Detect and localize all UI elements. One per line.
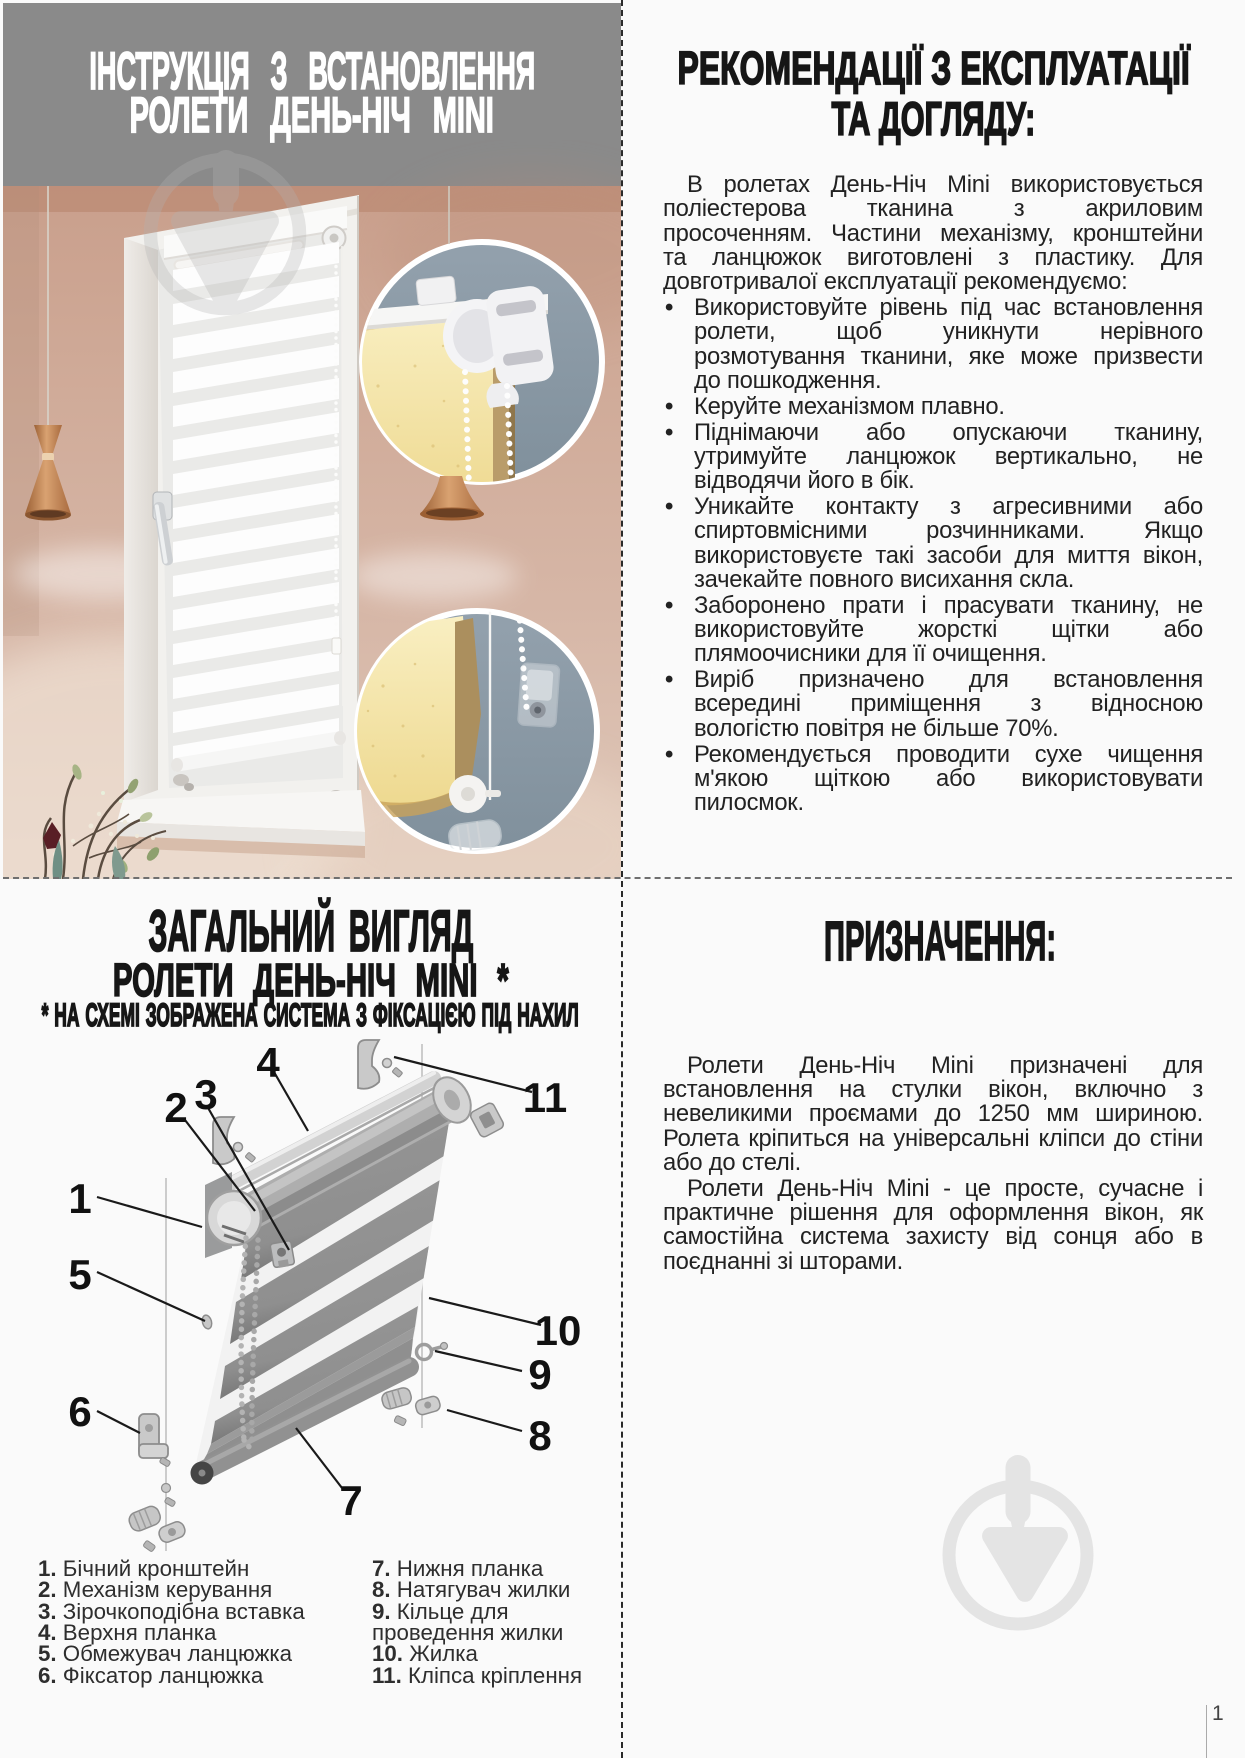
svg-text:4: 4 — [256, 1039, 280, 1086]
svg-text:5: 5 — [68, 1251, 91, 1298]
svg-text:10: 10 — [535, 1307, 582, 1354]
svg-text:3: 3 — [194, 1071, 217, 1118]
svg-text:9: 9 — [528, 1351, 551, 1398]
svg-text:8: 8 — [528, 1412, 551, 1459]
svg-text:2: 2 — [164, 1084, 187, 1131]
svg-text:7: 7 — [339, 1477, 362, 1524]
svg-text:6: 6 — [68, 1388, 91, 1435]
svg-text:1: 1 — [68, 1175, 91, 1222]
svg-text:11: 11 — [523, 1074, 567, 1121]
